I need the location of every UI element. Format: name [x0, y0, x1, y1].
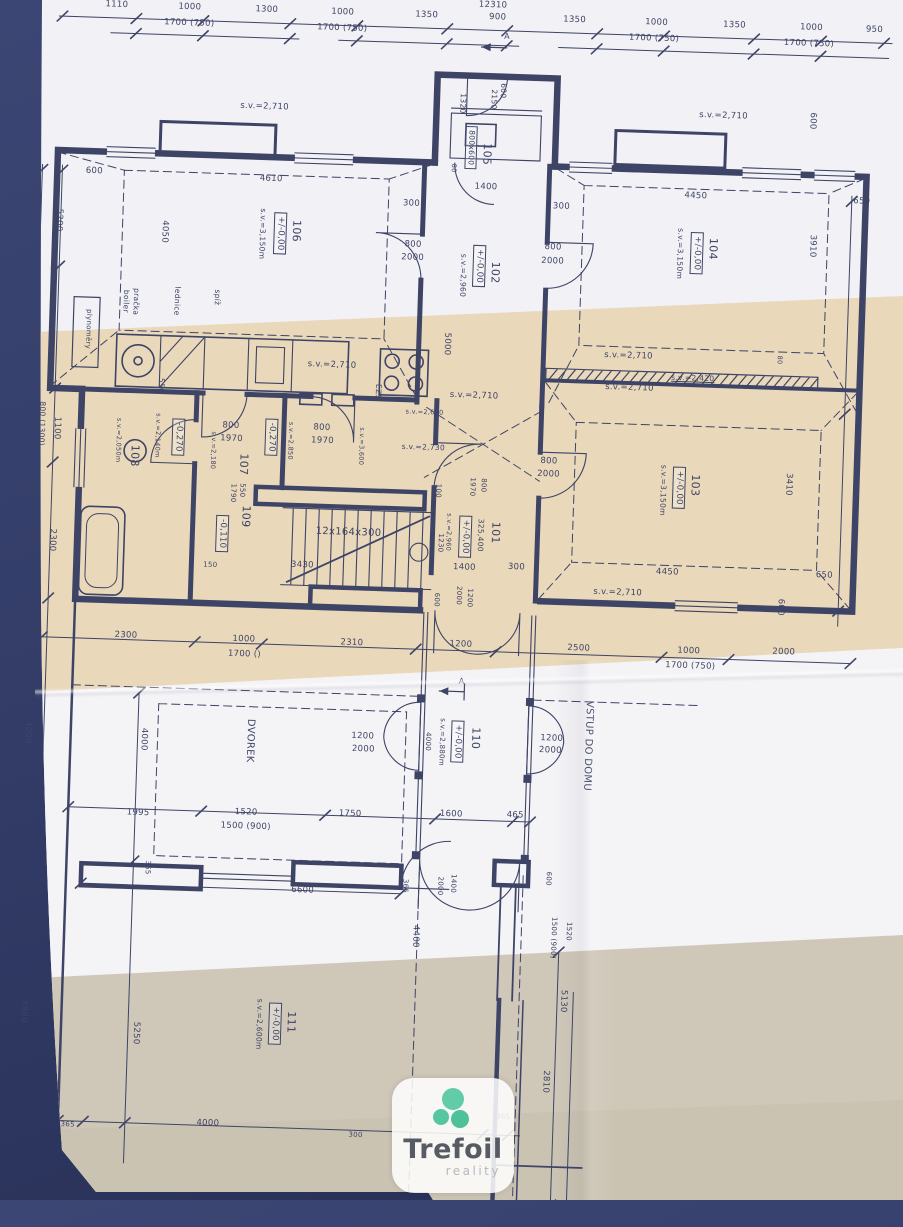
floor-plan-photo: 1231011101000130010001350900135010001350…	[0, 0, 903, 1200]
trefoil-reality-watermark: Trefoil reality	[392, 1078, 514, 1193]
white-band	[35, 648, 903, 978]
logo-title: Trefoil	[392, 1134, 514, 1165]
floor-plan-drawing	[0, 0, 903, 1200]
trefoil-clover-icon	[429, 1087, 477, 1129]
logo-subtitle: reality	[392, 1164, 514, 1178]
